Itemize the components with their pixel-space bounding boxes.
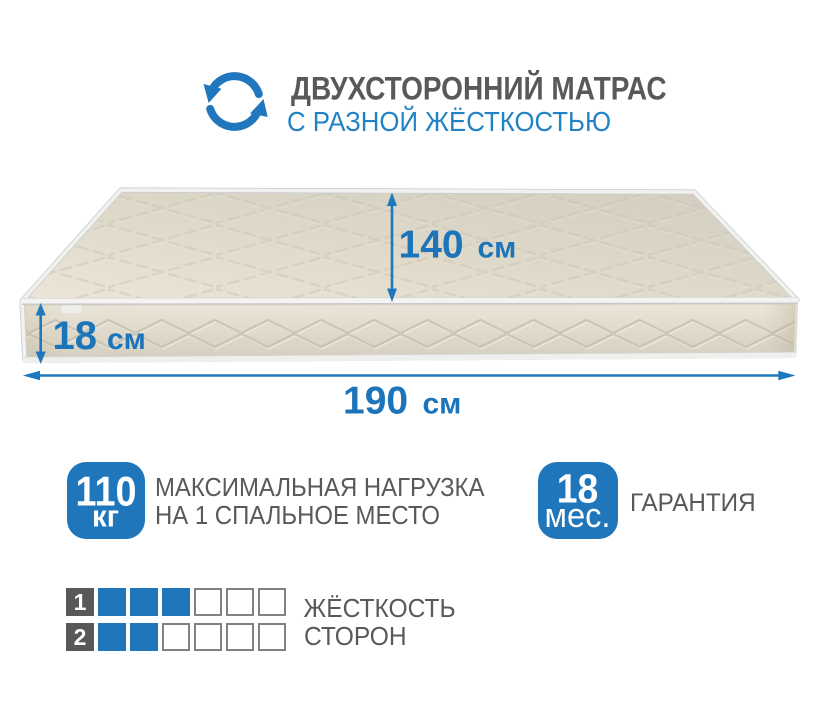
- svg-text:190: 190: [343, 380, 408, 423]
- svg-text:СТОРОН: СТОРОН: [304, 622, 407, 651]
- svg-text:С РАЗНОЙ ЖЁСТКОСТЬЮ: С РАЗНОЙ ЖЁСТКОСТЬЮ: [287, 106, 611, 137]
- svg-text:2: 2: [74, 624, 87, 650]
- svg-text:1: 1: [74, 589, 87, 615]
- svg-text:см: см: [423, 388, 462, 421]
- svg-text:18: 18: [53, 314, 98, 358]
- svg-text:НА 1 СПАЛЬНОЕ МЕСТО: НА 1 СПАЛЬНОЕ МЕСТО: [155, 501, 440, 530]
- svg-text:мес.: мес.: [545, 497, 611, 535]
- svg-text:ГАРАНТИЯ: ГАРАНТИЯ: [630, 490, 756, 517]
- svg-text:МАКСИМАЛЬНАЯ НАГРУЗКА: МАКСИМАЛЬНАЯ НАГРУЗКА: [155, 473, 485, 502]
- svg-text:140: 140: [399, 224, 464, 267]
- svg-text:ДВУХСТОРОННИЙ МАТРАС: ДВУХСТОРОННИЙ МАТРАС: [291, 71, 667, 107]
- svg-text:кг: кг: [92, 499, 119, 534]
- svg-text:см: см: [107, 323, 146, 356]
- svg-text:ЖЁСТКОСТЬ: ЖЁСТКОСТЬ: [304, 594, 456, 623]
- svg-text:см: см: [478, 232, 517, 265]
